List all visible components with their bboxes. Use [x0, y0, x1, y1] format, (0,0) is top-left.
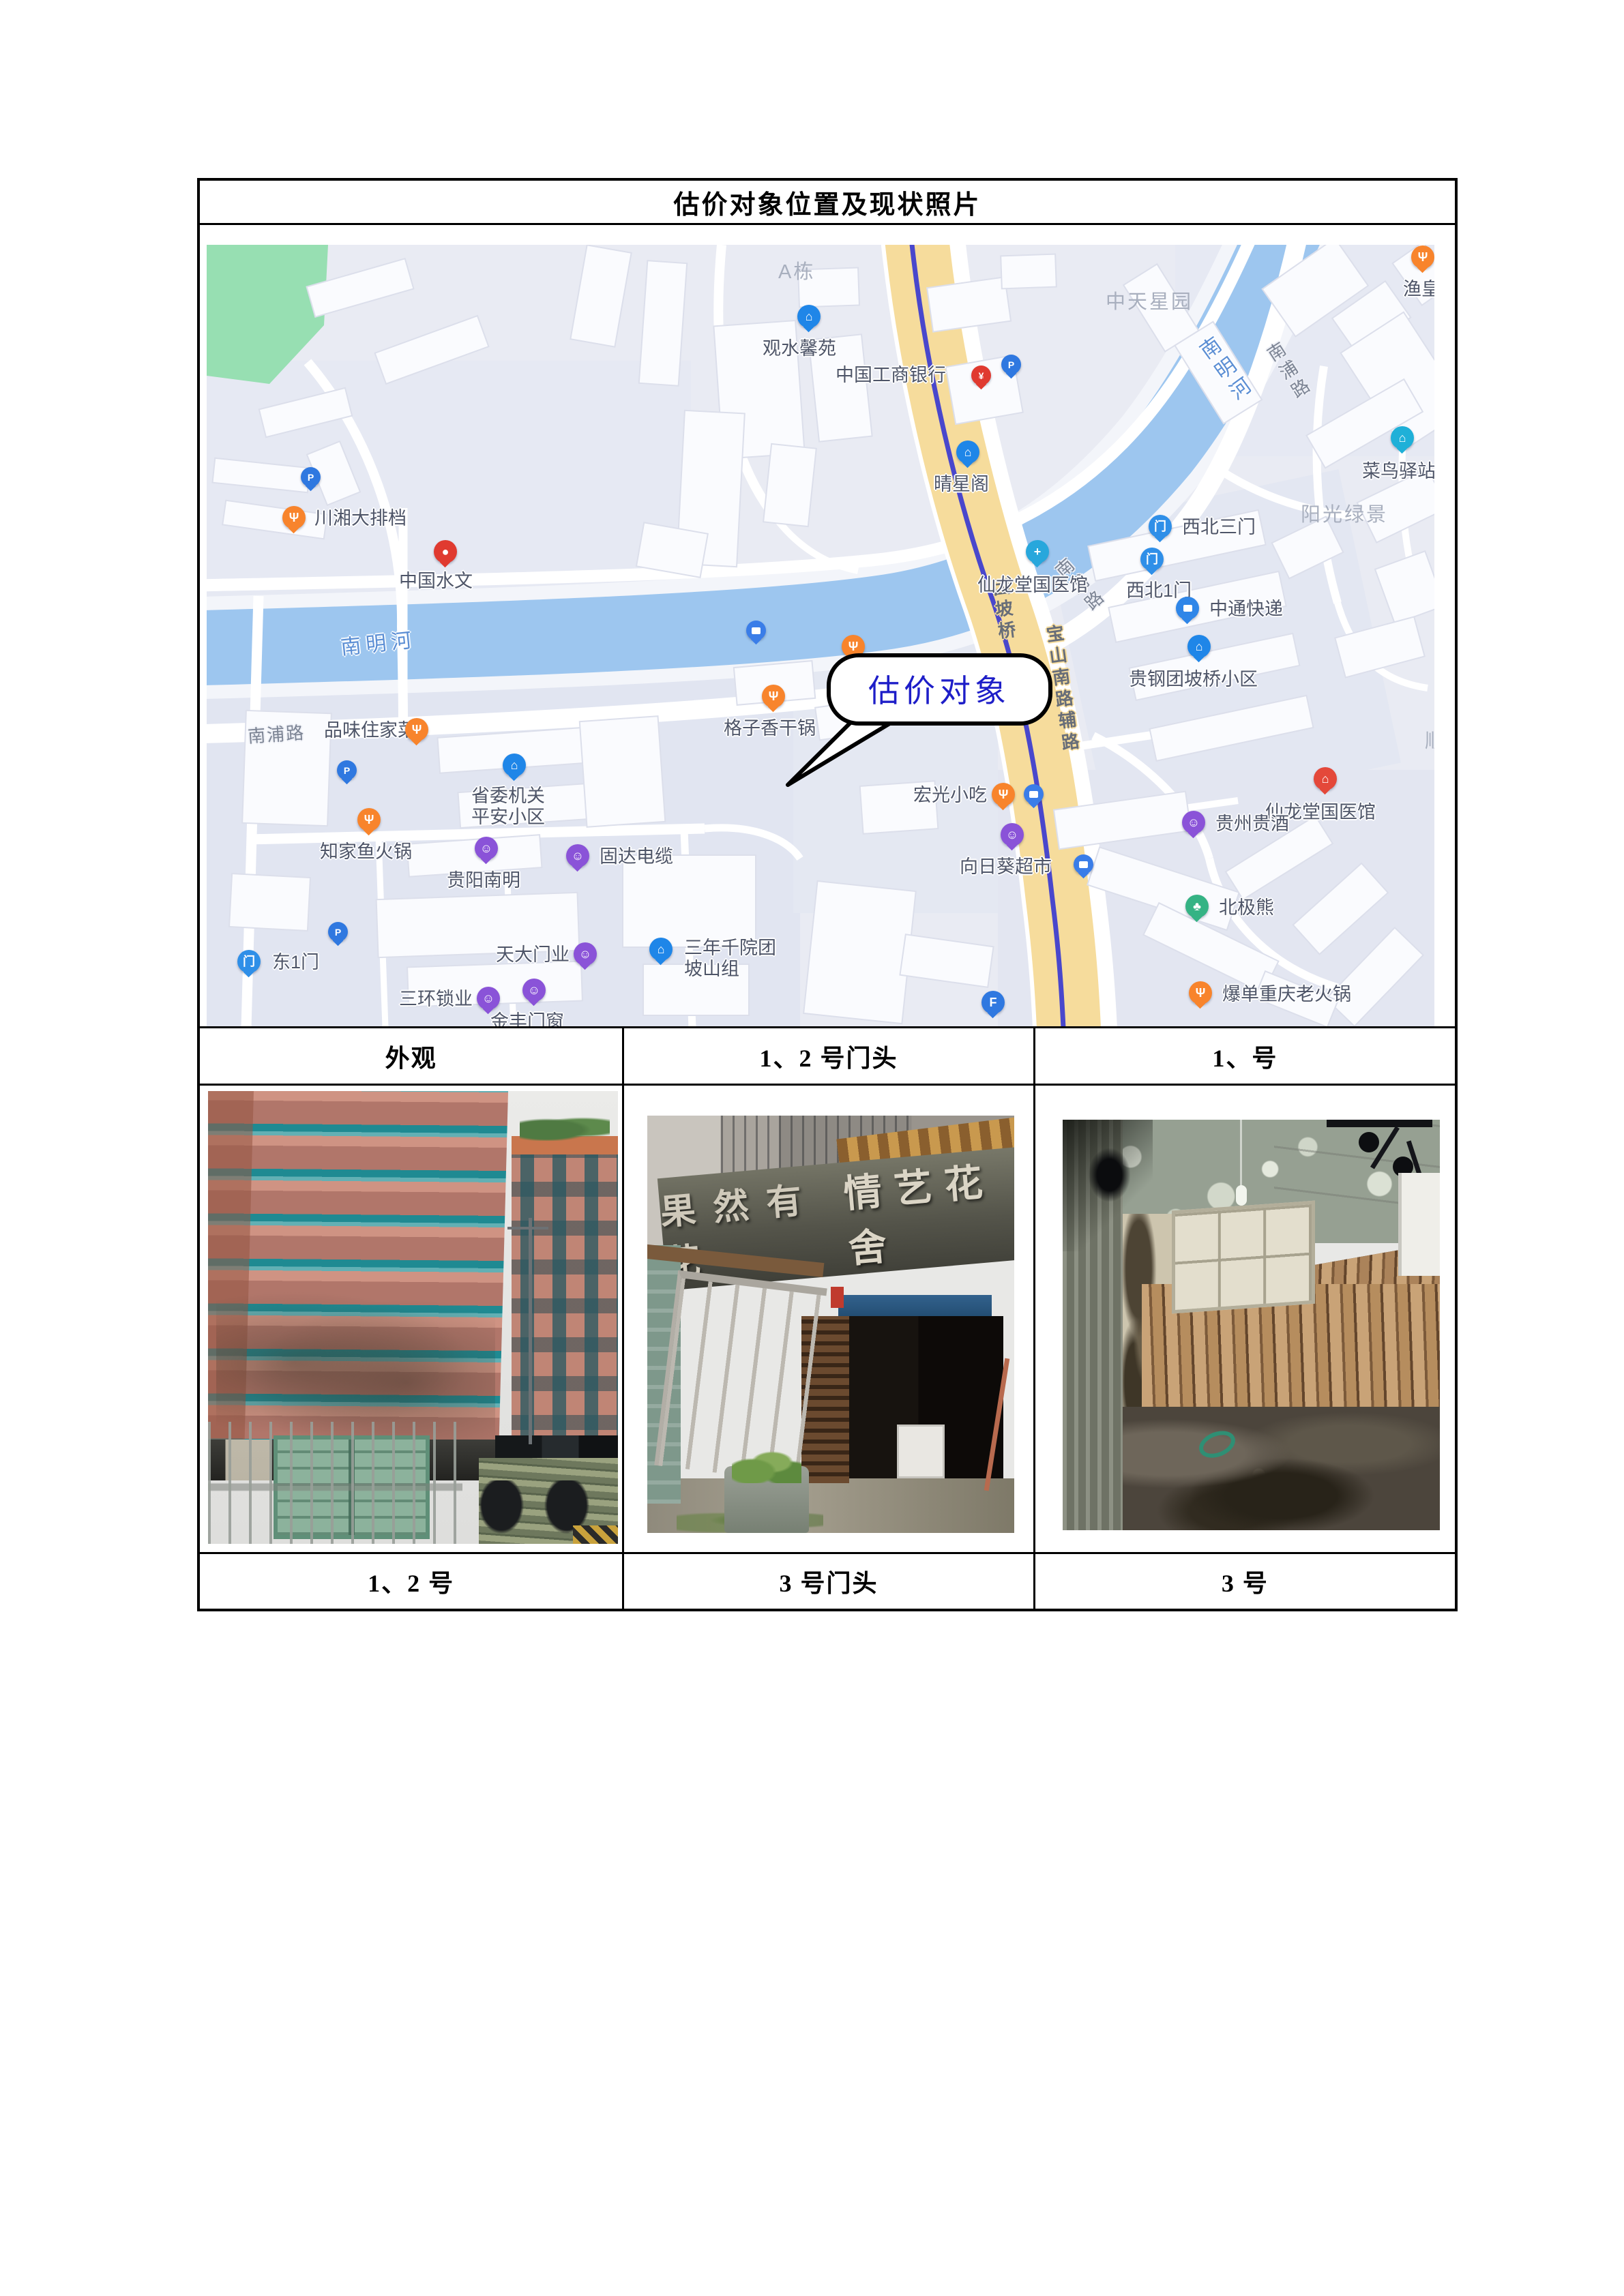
photo-cell-interior: [1033, 1086, 1455, 1552]
poi-label-cainiao-yizhan: 菜鸟驿站: [1362, 461, 1434, 482]
area-label-3: 顺兴: [1425, 725, 1434, 754]
photo-building-exterior: [208, 1091, 618, 1544]
poi-pin-qingxingge[interactable]: ⌂: [956, 441, 979, 464]
poi-pin-xibei-1men[interactable]: 门: [1140, 548, 1164, 571]
poi-label-sanhuan-suoye: 三环锁业: [399, 989, 473, 1010]
area-label-0: A栋: [778, 256, 815, 284]
poi-label-guda-dianlan: 固达电缆: [600, 846, 673, 867]
poi-pin-sannian-qianyuan-tuanposhanzu[interactable]: ⌂: [649, 938, 673, 961]
poi-label-sannian-qianyuan-tuanposhanzu: 三年千院团坡山组: [684, 938, 776, 980]
poi-pin-gezi-xiangganguo[interactable]: Ψ: [762, 685, 785, 708]
poi-pin-beijixiong[interactable]: ♣: [1185, 895, 1209, 918]
poi-label-qingxingge: 晴星阁: [934, 474, 989, 495]
poi-pin-tianda-menye[interactable]: ☺: [574, 942, 597, 966]
poi-label-zhongguo-shuiwen: 中国水文: [399, 571, 473, 592]
sign-text-right: 情艺花舍: [841, 1148, 1014, 1274]
poi-label-jinfeng-menchuang: 金丰门窗: [490, 1011, 564, 1026]
poi-pin-xiangrikui-chaoshi[interactable]: ☺: [1001, 823, 1024, 846]
photo-cell-shopfront: 果然有花 情艺花舍: [622, 1086, 1033, 1552]
poi-pin-pinwei-zhujiacai[interactable]: Ψ: [405, 718, 428, 741]
utility-pole: [529, 1218, 532, 1444]
hanging-bulb: [1236, 1185, 1247, 1206]
photo-cell-exterior: [200, 1086, 622, 1552]
poi-label-gezi-xiangganguo: 格子香干锅: [724, 718, 816, 739]
poi-label-guizhou-guijiu: 贵州贵酒: [1215, 814, 1289, 835]
photo-shop-interior: [1063, 1120, 1440, 1530]
poi-pin-guizhou-guijiu[interactable]: ☺: [1182, 811, 1205, 834]
poi-pin-jinfeng-menchuang[interactable]: ☺: [522, 979, 546, 1002]
poi-pin-zhongtong-kuaidi[interactable]: [1176, 597, 1199, 620]
poi-pin-parking-1[interactable]: P: [301, 467, 321, 487]
map-row: PΨ川湘大排档●中国水文⌂观水馨苑¥中国工商银行P⌂晴星阁+仙龙堂国医馆Ψ渔皇⌂…: [200, 223, 1455, 1026]
poi-label-zhongtong-kuaidi: 中通快递: [1209, 599, 1283, 620]
poi-pin-guanshui-xinyuan[interactable]: ⌂: [797, 305, 821, 328]
poi-label-pinwei-zhujiacai: 品味住家菜: [324, 720, 416, 741]
document-page: 估价对象位置及现状照片: [0, 0, 1624, 2296]
appraisal-photo-table: 估价对象位置及现状照片: [197, 178, 1458, 1611]
poi-pin-zhijia-yu-huoguo[interactable]: Ψ: [357, 808, 381, 831]
poi-label-dong-1-men: 东1门: [272, 952, 319, 973]
poi-label-chuanxiang-dapaidang: 川湘大排档: [314, 508, 407, 529]
poi-pin-dong-1-men[interactable]: 门: [237, 950, 261, 973]
poi-pin-food-behind-callout[interactable]: Ψ: [842, 635, 865, 658]
poi-label-beijixiong: 北极熊: [1219, 897, 1274, 919]
area-label-1: 中天星园: [1106, 286, 1193, 314]
motorbike: [475, 1480, 528, 1539]
poi-pin-baodan-chongqing-laohuoguo[interactable]: Ψ: [1189, 981, 1212, 1004]
page-title: 估价对象位置及现状照片: [673, 183, 981, 221]
poi-pin-fuel-station[interactable]: F: [981, 991, 1005, 1014]
poi-label-hongguang-xiaochi: 宏光小吃: [913, 785, 987, 806]
poi-pin-xianlongtang-guoyiguan-s[interactable]: ⌂: [1314, 767, 1337, 790]
poi-pin-chuanxiang-dapaidang[interactable]: Ψ: [282, 506, 306, 529]
building-wing: [512, 1150, 618, 1480]
caption-no-1-2: 1、2 号: [200, 1554, 622, 1609]
poi-pin-parking-3[interactable]: P: [337, 760, 357, 780]
poi-pin-parking-4[interactable]: P: [328, 922, 348, 942]
table-title-row: 估价对象位置及现状照片: [200, 181, 1455, 223]
poi-pin-hongguang-xiaochi[interactable]: Ψ: [992, 783, 1015, 806]
poi-label-xiangrikui-chaoshi: 向日葵超市: [960, 856, 1052, 878]
poi-label-yuhuang: 渔皇: [1403, 279, 1434, 300]
poi-label-zhijia-yu-huoguo: 知家鱼火锅: [320, 841, 412, 863]
poi-pin-yuhuang[interactable]: Ψ: [1411, 245, 1434, 269]
poi-label-xibei-sanmen: 西北三门: [1182, 517, 1256, 538]
caption-exterior: 外观: [200, 1028, 622, 1084]
poi-pin-guiyang-nanming[interactable]: ☺: [475, 837, 498, 860]
poi-pin-xianlongtang-guoyiguan-n[interactable]: +: [1026, 540, 1049, 563]
caption-row-1: 外观 1、2 号门头 1、号: [200, 1026, 1455, 1084]
poi-label-xianlongtang-guoyiguan-n: 仙龙堂国医馆: [977, 575, 1088, 596]
caption-no-1: 1、号: [1033, 1028, 1455, 1084]
area-label-2: 阳光绿景: [1301, 498, 1388, 527]
poi-pin-zhongguo-shuiwen[interactable]: ●: [434, 540, 457, 563]
poi-label-baodan-chongqing-laohuoguo: 爆单重庆老火锅: [1222, 984, 1351, 1005]
poi-pin-guigang-tuanpoqiao-xiaoqu[interactable]: ⌂: [1187, 635, 1211, 658]
poi-pin-bus-stop-1[interactable]: [1024, 784, 1044, 804]
white-cabinet: [897, 1425, 945, 1479]
poi-label-guiyang-nanming: 贵阳南明: [447, 870, 520, 891]
photo-shopfront-1-2: 果然有花 情艺花舍: [647, 1116, 1014, 1533]
poi-pin-sanhuan-suoye[interactable]: ☺: [477, 987, 500, 1010]
metal-fence: [208, 1422, 462, 1544]
poi-pin-cainiao-yizhan[interactable]: ⌂: [1391, 426, 1414, 449]
poi-label-guigang-tuanpoqiao-xiaoqu: 贵钢团坡桥小区: [1129, 669, 1258, 690]
poi-pin-icbc[interactable]: ¥: [971, 366, 991, 385]
wall-shelf: [1172, 1201, 1315, 1313]
road-label-0: 南浦路: [247, 719, 306, 748]
caption-shopfront-3: 3 号门头: [622, 1554, 1033, 1609]
poi-label-tianda-menye: 天大门业: [496, 944, 570, 966]
poi-pin-guda-dianlan[interactable]: ☺: [566, 844, 589, 867]
caption-row-2: 1、2 号 3 号门头 3 号: [200, 1552, 1455, 1609]
poi-pin-bus-stop-2[interactable]: [1074, 854, 1093, 874]
caption-shopfront-1-2: 1、2 号门头: [622, 1028, 1033, 1084]
photo-row: 果然有花 情艺花舍: [200, 1084, 1455, 1552]
poi-pin-bus-stop-3[interactable]: [746, 621, 766, 640]
map-canvas[interactable]: PΨ川湘大排档●中国水文⌂观水馨苑¥中国工商银行P⌂晴星阁+仙龙堂国医馆Ψ渔皇⌂…: [207, 245, 1434, 1026]
poi-pin-parking-2[interactable]: P: [1001, 355, 1021, 374]
caption-no-3: 3 号: [1033, 1554, 1455, 1609]
poi-label-guanshui-xinyuan: 观水馨苑: [763, 338, 836, 359]
poi-pin-shengwei-jiguan-pingan-xiaoqu[interactable]: ⌂: [503, 754, 526, 777]
poi-label-icbc: 中国工商银行: [836, 365, 946, 386]
roof-plants: [520, 1114, 610, 1141]
poi-pin-xibei-sanmen[interactable]: 门: [1149, 515, 1172, 538]
poi-label-shengwei-jiguan-pingan-xiaoqu: 省委机关平安小区: [471, 786, 545, 828]
